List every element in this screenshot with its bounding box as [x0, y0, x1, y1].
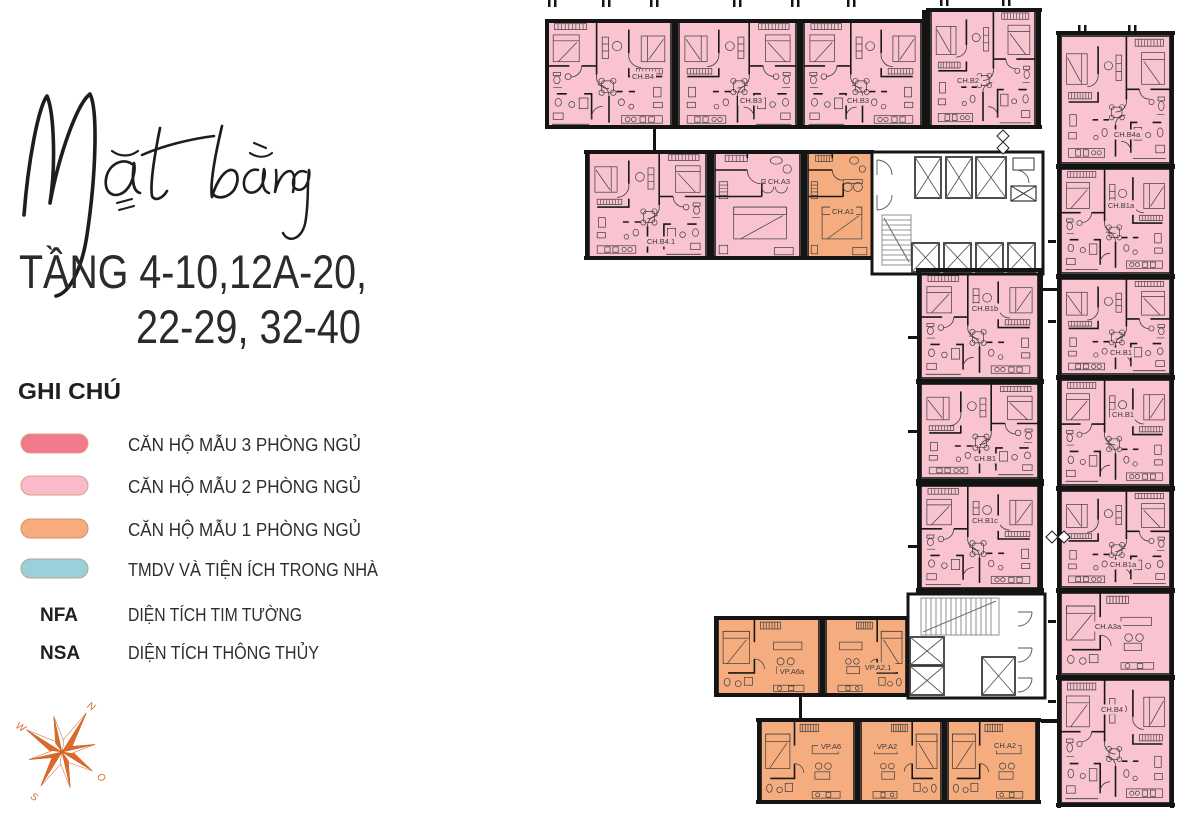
svg-text:CH.B1: CH.B1: [1112, 410, 1134, 419]
svg-text:CH.B1a: CH.B1a: [1108, 201, 1135, 210]
svg-text:TẦNG 4-10,12A-20,: TẦNG 4-10,12A-20,: [19, 245, 367, 298]
svg-text:GHI CHÚ: GHI CHÚ: [18, 377, 121, 404]
svg-text:CĂN HỘ MẪU 1 PHÒNG NGỦ: CĂN HỘ MẪU 1 PHÒNG NGỦ: [128, 519, 361, 540]
svg-text:CH.B4.1: CH.B4.1: [647, 237, 675, 246]
svg-text:CH.B1: CH.B1: [1110, 348, 1132, 357]
svg-text:NFA: NFA: [40, 605, 78, 626]
svg-text:CH.B1c: CH.B1c: [972, 516, 998, 525]
svg-text:CH.B4a: CH.B4a: [1114, 130, 1141, 139]
svg-text:CH.A3a: CH.A3a: [1095, 622, 1122, 631]
svg-text:CH.B4: CH.B4: [632, 72, 654, 81]
svg-text:CH.B2: CH.B2: [957, 76, 979, 85]
svg-text:CH.A1: CH.A1: [832, 207, 854, 216]
svg-text:CH.B1: CH.B1: [974, 454, 996, 463]
svg-text:VP.A6a: VP.A6a: [780, 667, 805, 676]
svg-text:CH.B3: CH.B3: [847, 96, 869, 105]
svg-text:CH.B3: CH.B3: [740, 96, 762, 105]
svg-text:CH.B1b: CH.B1b: [972, 304, 998, 313]
svg-text:CH.B1a: CH.B1a: [1110, 560, 1137, 569]
svg-text:22-29, 32-40: 22-29, 32-40: [136, 300, 361, 353]
svg-text:CĂN HỘ MẪU 3 PHÒNG NGỦ: CĂN HỘ MẪU 3 PHÒNG NGỦ: [128, 434, 361, 455]
svg-text:CĂN HỘ MẪU 2 PHÒNG NGỦ: CĂN HỘ MẪU 2 PHÒNG NGỦ: [128, 476, 361, 497]
svg-text:DIỆN TÍCH TIM TƯỜNG: DIỆN TÍCH TIM TƯỜNG: [128, 604, 302, 625]
svg-text:NSA: NSA: [40, 643, 80, 664]
svg-text:CH.A2: CH.A2: [994, 741, 1016, 750]
svg-text:CH.A3: CH.A3: [768, 177, 790, 186]
svg-text:VP.A2: VP.A2: [877, 742, 897, 751]
svg-text:CH.B4: CH.B4: [1101, 705, 1123, 714]
svg-text:DIỆN TÍCH THÔNG THỦY: DIỆN TÍCH THÔNG THỦY: [128, 642, 319, 663]
svg-text:VP.A2.1: VP.A2.1: [865, 663, 892, 672]
svg-text:TMDV VÀ TIỆN ÍCH TRONG NHÀ: TMDV VÀ TIỆN ÍCH TRONG NHÀ: [128, 560, 378, 580]
svg-text:VP.A6: VP.A6: [821, 742, 841, 751]
